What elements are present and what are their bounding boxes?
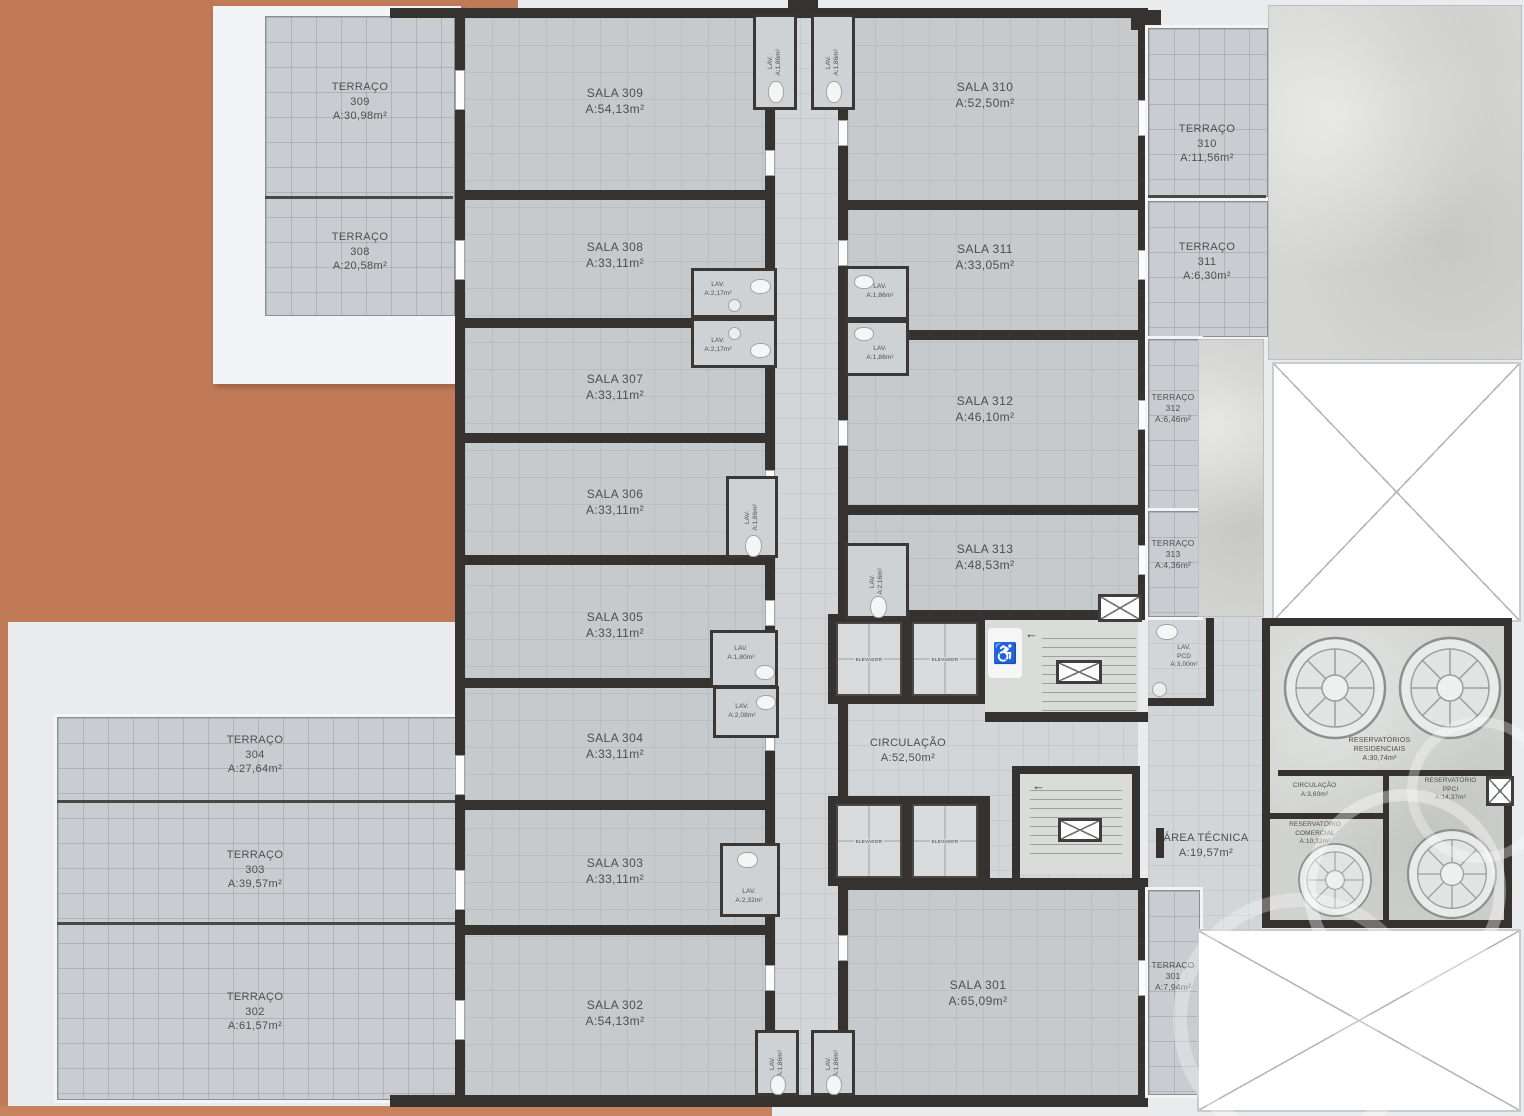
lav-pcd-toilet bbox=[1156, 624, 1178, 640]
lav-mid-right-lower-label: LAV.A:1,86m² bbox=[860, 345, 900, 362]
window-gap bbox=[455, 240, 465, 280]
door-gap bbox=[765, 150, 775, 176]
terraco-313-label: TERRAÇO313A:4,36m² bbox=[1146, 538, 1200, 572]
floor-plan-canvas: TERRAÇO309A:30,98m² TERRAÇO308A:20,58m² … bbox=[0, 0, 1524, 1116]
lav-mid-right-lower: LAV.A:1,86m² bbox=[845, 320, 909, 376]
wall-bottom bbox=[390, 1095, 1148, 1107]
stairwell-lower-right-wall bbox=[1132, 766, 1140, 882]
wall-entry-stub bbox=[788, 0, 818, 14]
stairwell-lower-top-wall bbox=[1012, 766, 1140, 774]
terraco-303-label: TERRAÇO303A:39,57m² bbox=[160, 848, 350, 892]
lav-mid-left-lower: LAV.A:2,17m² bbox=[691, 318, 777, 368]
sala-302-label: SALA 302A:54,13m² bbox=[490, 998, 740, 1030]
sala-312-label: SALA 312A:46,10m² bbox=[860, 394, 1110, 426]
window-gap bbox=[1138, 250, 1148, 280]
circulacao-label: CIRCULAÇÃOA:52,50m² bbox=[858, 736, 958, 765]
window-gap bbox=[455, 70, 465, 110]
lav-sala304-label: LAV.A:2,08m² bbox=[720, 703, 764, 720]
void-area-bottom-right bbox=[1197, 929, 1521, 1112]
wall-northeast-stub bbox=[1131, 10, 1161, 30]
sala-313-label: SALA 313A:48,53m² bbox=[860, 542, 1110, 574]
lav-sala306-label: LAV.A:1,86m² bbox=[744, 504, 761, 530]
handicap-badge: ♿ bbox=[988, 628, 1022, 678]
lav-mid-right-upper-label: LAV.A:1,86m² bbox=[860, 283, 900, 300]
terraco-304-label: TERRAÇO304A:27,64m² bbox=[160, 733, 350, 777]
terrace-310-311-divider bbox=[1148, 195, 1266, 199]
wall-303-302 bbox=[455, 925, 775, 935]
terrace-303-302-divider bbox=[57, 922, 457, 925]
reservatorios-vertical-wall bbox=[1383, 776, 1389, 920]
lav-bottom-left: LAV.A:1,86m² bbox=[755, 1030, 799, 1096]
wall-309-308 bbox=[455, 190, 775, 200]
elevator-cabin-3: ELEVADOR bbox=[836, 804, 902, 878]
orange-bottom-strip bbox=[0, 1106, 772, 1116]
lav-top-left-label: LAV.A:1,86m² bbox=[767, 49, 784, 75]
sala-305-label: SALA 305A:33,11m² bbox=[490, 610, 740, 642]
lav-mid-left-upper-label: LAV.A:2,17m² bbox=[696, 281, 740, 298]
sala-308-label: SALA 308A:33,11m² bbox=[490, 240, 740, 272]
door-gap bbox=[765, 600, 775, 626]
area-tecnica-label: ÁREA TÉCNICAA:19,57m² bbox=[1152, 831, 1260, 860]
wall-312-313 bbox=[838, 505, 1148, 515]
wall-307-306 bbox=[455, 433, 775, 443]
lav-top-left: LAV.A:1,86m² bbox=[753, 14, 797, 110]
stairwell-lower-left-wall bbox=[1012, 766, 1020, 882]
comercial-top-wall bbox=[1270, 813, 1383, 819]
terrace-309-308-divider bbox=[265, 196, 453, 199]
sala-307-label: SALA 307A:33,11m² bbox=[490, 372, 740, 404]
stair-arrow-lower: ← bbox=[1032, 778, 1045, 793]
sala-301-label: SALA 301A:65,09m² bbox=[853, 978, 1103, 1010]
window-gap bbox=[1138, 100, 1148, 136]
void-area-right bbox=[1272, 362, 1521, 622]
window-gap bbox=[455, 870, 465, 910]
lav-bottom-right: LAV.A:1,86m² bbox=[811, 1030, 855, 1096]
wall-east-lower bbox=[1138, 890, 1148, 1107]
shaft-xbox-lower bbox=[1058, 818, 1102, 842]
concrete-strip-right bbox=[1198, 339, 1264, 617]
elevator-cabin-2: ELEVADOR bbox=[912, 622, 978, 696]
wall-310-311 bbox=[838, 200, 1148, 210]
lav-pcd-label: LAV.PCDA:3,00m² bbox=[1158, 644, 1210, 670]
stairwell-upper-bottom-wall bbox=[985, 712, 1148, 722]
door-gap bbox=[838, 420, 848, 446]
stair-arrow-upper: ← bbox=[1025, 626, 1038, 641]
reservatorios-residenciais-label: RESERVATÓRIOSRESIDENCIAISA:30,74m² bbox=[1302, 736, 1457, 764]
terraco-312-label: TERRAÇO312A:6,46m² bbox=[1146, 392, 1200, 426]
door-gap bbox=[838, 935, 848, 961]
lav-mid-left-lower-label: LAV.A:2,17m² bbox=[696, 337, 740, 354]
orange-left-strip bbox=[0, 622, 8, 1116]
door-gap bbox=[765, 965, 775, 991]
window-gap bbox=[455, 1000, 465, 1040]
elevator-cabin-4: ELEVADOR bbox=[912, 804, 978, 878]
sala-310-label: SALA 310A:52,50m² bbox=[860, 80, 1110, 112]
door-gap bbox=[838, 240, 848, 266]
central-corridor bbox=[775, 18, 838, 1095]
window-gap bbox=[455, 755, 465, 795]
sala-304-label: SALA 304A:33,11m² bbox=[490, 731, 740, 763]
sala-311-label: SALA 311A:33,05m² bbox=[860, 242, 1110, 274]
terrace-304-303-divider bbox=[57, 800, 457, 803]
terrace-310-tiles bbox=[1148, 28, 1268, 197]
lav-pcd-sink bbox=[1152, 682, 1167, 697]
lav-top-right: LAV.A:1,86m² bbox=[811, 14, 855, 110]
wall-304-303 bbox=[455, 800, 775, 810]
terraco-309-label: TERRAÇO309A:30,98m² bbox=[275, 80, 445, 124]
concrete-slab-topright bbox=[1268, 5, 1522, 360]
shaft-xbox-top bbox=[1098, 594, 1142, 622]
lav-mid-left-upper: LAV.A:2,17m² bbox=[691, 268, 777, 318]
wheelchair-icon: ♿ bbox=[993, 641, 1018, 666]
terraco-310-label: TERRAÇO310A:11,56m² bbox=[1150, 122, 1264, 166]
sala-303-label: SALA 303A:33,11m² bbox=[490, 856, 740, 888]
reservatorio-comercial-label: RESERVATÓRIOCOMERCIALA:10,32m² bbox=[1270, 821, 1360, 847]
lav-bottom-left-label: LAV.A:1,86m² bbox=[769, 1050, 786, 1076]
reservatorio-ppci-label: RESERVATÓRIOPPCIA:14,37m² bbox=[1408, 777, 1493, 803]
lav-sala305-label: LAV.A:1,80m² bbox=[719, 645, 763, 662]
lav-top-right-label: LAV.A:1,86m² bbox=[825, 49, 842, 75]
lav-mid-right-upper: LAV.A:1,86m² bbox=[845, 266, 909, 320]
reservatorios-divider-wall bbox=[1278, 770, 1504, 776]
terraco-311-label: TERRAÇO311A:6,30m² bbox=[1150, 240, 1264, 284]
shaft-xbox-upper bbox=[1056, 660, 1102, 684]
reservatorios-block: RESERVATÓRIOSRESIDENCIAISA:30,74m² CIRCU… bbox=[1262, 618, 1512, 928]
lav-sala303-label: LAV.A:2,32m² bbox=[727, 888, 771, 905]
lav-bottom-right-label: LAV.A:1,86m² bbox=[825, 1050, 842, 1076]
terraco-301-label: TERRAÇO301A:7,94m² bbox=[1146, 960, 1200, 994]
terraco-302-label: TERRAÇO302A:61,57m² bbox=[160, 990, 350, 1034]
sala-306-label: SALA 306A:33,11m² bbox=[490, 487, 740, 519]
sala-309-label: SALA 309A:54,13m² bbox=[490, 86, 740, 118]
door-gap bbox=[838, 120, 848, 146]
elevator-cabin-1: ELEVADOR bbox=[836, 622, 902, 696]
reservatorios-circulacao-label: CIRCULAÇÃOA:3,60m² bbox=[1277, 782, 1352, 799]
terraco-308-label: TERRAÇO308A:20,58m² bbox=[275, 230, 445, 274]
lav-pcd-bottom-wall bbox=[1148, 698, 1214, 706]
